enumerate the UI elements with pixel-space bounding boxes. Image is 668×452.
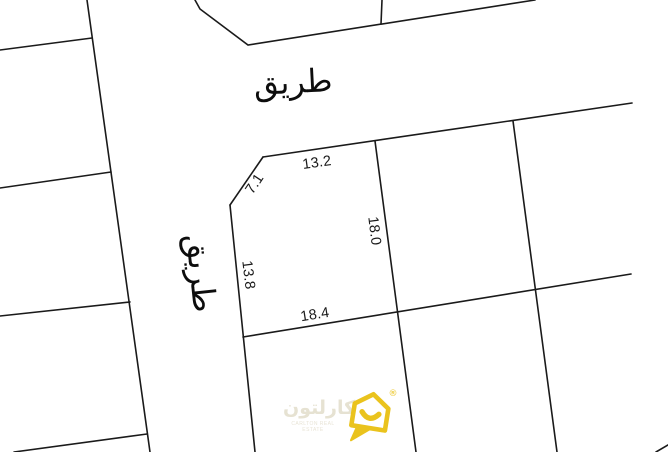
corner-fragment-line <box>656 445 668 452</box>
road-label-top: طريق <box>253 61 334 103</box>
house-bubble-icon <box>349 392 390 446</box>
plat-map: طريق طريق 13.2 7.1 18.0 13.8 18.4 كارلتو… <box>0 0 668 452</box>
house-outline-icon <box>351 392 390 431</box>
dimension-label-east: 18.0 <box>364 216 383 247</box>
road-label-left: طريق <box>178 232 224 314</box>
block-north-boundary <box>263 103 632 157</box>
registered-mark: ® <box>389 389 398 399</box>
north-block-divider <box>381 0 382 24</box>
west-parcel-divider-2 <box>0 172 111 188</box>
west-parcel-divider-3 <box>0 302 130 316</box>
brand-name-block: كارلتون CARLTON REAL ESTATE <box>283 398 343 433</box>
west-parcel-divider-4 <box>14 434 147 452</box>
road-west-edge-line <box>87 0 150 452</box>
plot-south-edge <box>243 274 631 337</box>
brand-name-arabic: كارلتون <box>283 398 343 418</box>
dimension-label-west: 13.8 <box>238 260 257 291</box>
west-parcel-divider-1 <box>0 38 92 50</box>
north-block-boundary <box>195 0 535 45</box>
brand-name-english: CARLTON REAL ESTATE <box>283 421 343 433</box>
parcel-linework <box>0 0 668 452</box>
carlton-logo-icon: ® <box>338 382 402 450</box>
plot-west-edge <box>230 205 255 452</box>
